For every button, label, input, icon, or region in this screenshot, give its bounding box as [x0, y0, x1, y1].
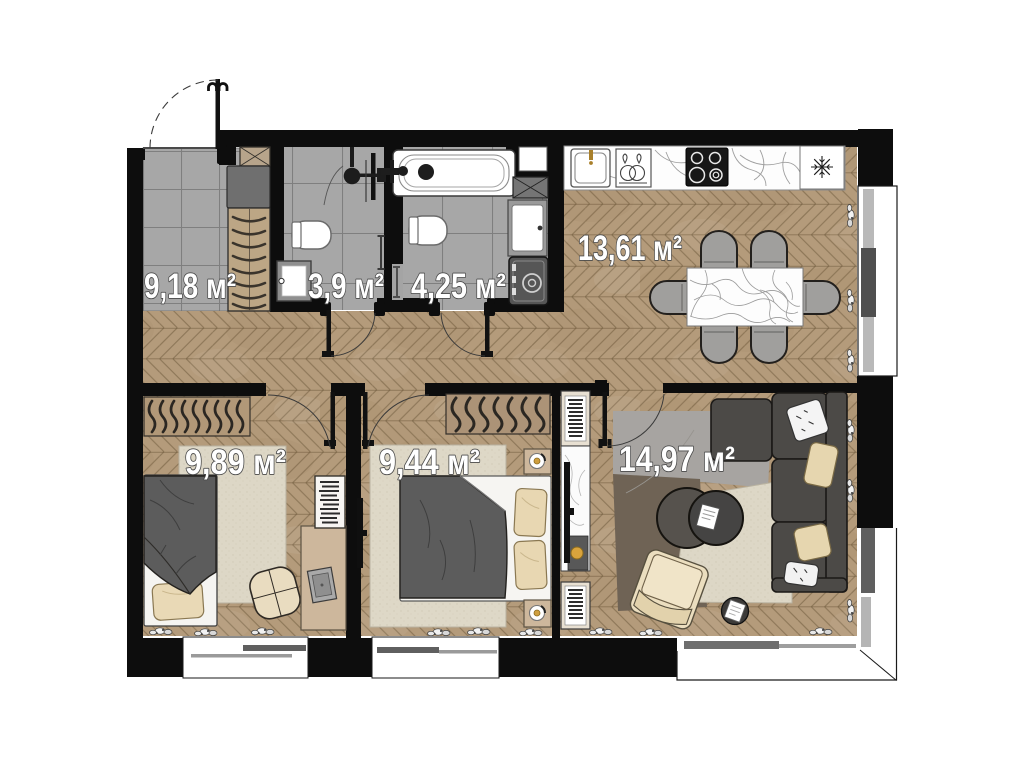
svg-text:13,61 м²: 13,61 м²	[578, 229, 682, 268]
svg-text:9,44 м²: 9,44 м²	[379, 443, 480, 482]
svg-text:4,25 м²: 4,25 м²	[411, 267, 506, 306]
svg-text:9,18 м²: 9,18 м²	[144, 267, 236, 306]
svg-text:3,9 м²: 3,9 м²	[308, 267, 384, 306]
svg-text:9,89 м²: 9,89 м²	[185, 443, 286, 482]
svg-text:14,97 м²: 14,97 м²	[619, 440, 735, 479]
